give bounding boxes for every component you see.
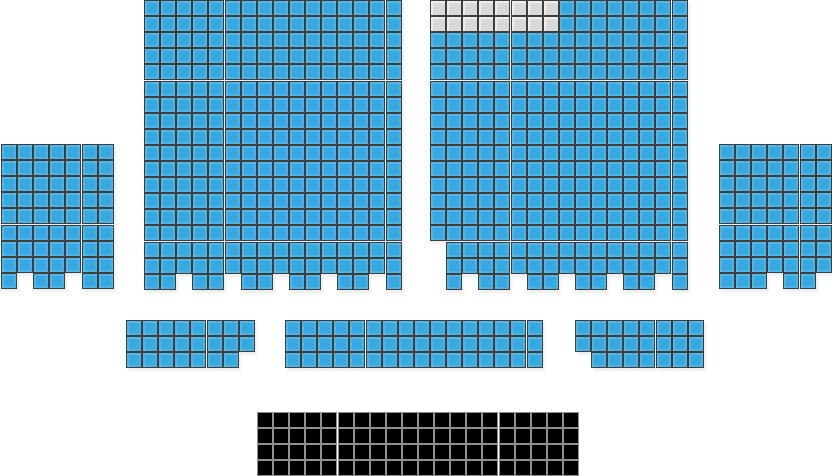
seat-available[interactable] [33, 241, 49, 257]
seat-available[interactable] [239, 320, 255, 336]
seat-available[interactable] [192, 97, 208, 113]
seat-available[interactable] [192, 242, 208, 258]
seat-available[interactable] [527, 242, 543, 258]
seat-available[interactable] [321, 48, 337, 64]
seat-available[interactable] [176, 97, 192, 113]
seat-available[interactable] [623, 81, 639, 97]
seat-available[interactable] [305, 113, 321, 129]
seat-available[interactable] [241, 274, 257, 290]
seat-available[interactable] [176, 81, 192, 97]
seat-available[interactable] [337, 129, 353, 145]
seat-available[interactable] [241, 129, 257, 145]
seat-available[interactable] [257, 81, 273, 97]
seat-available[interactable] [623, 145, 639, 161]
seat-available[interactable] [623, 242, 639, 258]
seat-available[interactable] [816, 192, 832, 208]
seat-available[interactable] [353, 0, 369, 16]
seat-available[interactable] [462, 113, 478, 129]
seat-available[interactable] [623, 258, 639, 274]
seat-available[interactable] [321, 161, 337, 177]
seat-available[interactable] [192, 177, 208, 193]
seat-available[interactable] [176, 129, 192, 145]
seat-available[interactable] [208, 193, 224, 209]
seat-available[interactable] [349, 352, 365, 368]
seat-available[interactable] [607, 320, 623, 336]
seat-available[interactable] [176, 32, 192, 48]
seat-available[interactable] [478, 145, 494, 161]
seat-available[interactable] [208, 113, 224, 129]
seat-available[interactable] [369, 48, 385, 64]
seat-available[interactable] [767, 160, 783, 176]
seat-available[interactable] [430, 32, 446, 48]
seat-available[interactable] [305, 209, 321, 225]
seat-available[interactable] [160, 97, 176, 113]
seat-available[interactable] [144, 113, 160, 129]
seat-available[interactable] [800, 257, 816, 273]
seat-available[interactable] [430, 113, 446, 129]
seat-available[interactable] [289, 48, 305, 64]
seat-available[interactable] [289, 274, 305, 290]
seat-available[interactable] [494, 161, 510, 177]
seat-available[interactable] [144, 0, 160, 16]
seat-available[interactable] [160, 32, 176, 48]
seat-available[interactable] [337, 145, 353, 161]
seat-available[interactable] [17, 192, 33, 208]
seat-available[interactable] [559, 129, 575, 145]
seat-available[interactable] [369, 145, 385, 161]
seat-available[interactable] [225, 16, 241, 32]
seat-available[interactable] [446, 242, 462, 258]
seat-available[interactable] [273, 48, 289, 64]
seat-available[interactable] [800, 192, 816, 208]
seat-available[interactable] [511, 145, 527, 161]
seat-available[interactable] [672, 16, 688, 32]
seat-available[interactable] [1, 225, 17, 241]
seat-available[interactable] [317, 352, 333, 368]
seat-available[interactable] [735, 192, 751, 208]
seat-available[interactable] [735, 257, 751, 273]
seat-available[interactable] [591, 320, 607, 336]
seat-available[interactable] [478, 258, 494, 274]
seat-available[interactable] [257, 177, 273, 193]
seat-available[interactable] [575, 209, 591, 225]
seat-available[interactable] [639, 320, 655, 336]
seat-available[interactable] [17, 241, 33, 257]
seat-available[interactable] [527, 129, 543, 145]
seat-available[interactable] [719, 225, 735, 241]
seat-available[interactable] [655, 225, 671, 241]
seat-available[interactable] [382, 336, 398, 352]
seat-available[interactable] [176, 64, 192, 80]
seat-available[interactable] [623, 16, 639, 32]
seat-available[interactable] [816, 176, 832, 192]
seat-available[interactable] [321, 242, 337, 258]
seat-available[interactable] [446, 161, 462, 177]
seat-available[interactable] [511, 64, 527, 80]
seat-available[interactable] [192, 258, 208, 274]
seat-available[interactable] [559, 64, 575, 80]
seat-available[interactable] [144, 32, 160, 48]
seat-available[interactable] [494, 320, 510, 336]
seat-available[interactable] [225, 161, 241, 177]
seat-available[interactable] [144, 258, 160, 274]
seat-available[interactable] [353, 193, 369, 209]
seat-available[interactable] [192, 48, 208, 64]
seat-available[interactable] [639, 81, 655, 97]
seat-available[interactable] [575, 145, 591, 161]
seat-available[interactable] [559, 177, 575, 193]
seat-available[interactable] [369, 32, 385, 48]
seat-available[interactable] [321, 64, 337, 80]
seat-available[interactable] [241, 242, 257, 258]
seat-available[interactable] [257, 209, 273, 225]
seat-available[interactable] [192, 274, 208, 290]
seat-available[interactable] [800, 176, 816, 192]
seat-available[interactable] [672, 258, 688, 274]
seat-available[interactable] [494, 129, 510, 145]
seat-available[interactable] [527, 209, 543, 225]
seat-available[interactable] [98, 176, 114, 192]
seat-available[interactable] [17, 160, 33, 176]
seat-available[interactable] [607, 352, 623, 368]
seat-available[interactable] [353, 81, 369, 97]
seat-available[interactable] [446, 225, 462, 241]
seat-available[interactable] [816, 160, 832, 176]
seat-available[interactable] [257, 97, 273, 113]
seat-available[interactable] [655, 242, 671, 258]
seat-available[interactable] [623, 352, 639, 368]
seat-available[interactable] [337, 48, 353, 64]
seat-available[interactable] [225, 32, 241, 48]
seat-available[interactable] [241, 64, 257, 80]
seat-available[interactable] [321, 0, 337, 16]
seat-available[interactable] [1, 208, 17, 224]
seat-available[interactable] [65, 241, 81, 257]
seat-available[interactable] [305, 16, 321, 32]
seat-available[interactable] [511, 81, 527, 97]
seat-available[interactable] [144, 242, 160, 258]
seat-available[interactable] [257, 242, 273, 258]
seat-available[interactable] [816, 241, 832, 257]
seat-available[interactable] [160, 16, 176, 32]
seat-available[interactable] [575, 113, 591, 129]
seat-available[interactable] [478, 113, 494, 129]
seat-available[interactable] [527, 32, 543, 48]
seat-available[interactable] [462, 352, 478, 368]
seat-available[interactable] [176, 113, 192, 129]
seat-available[interactable] [176, 225, 192, 241]
seat-available[interactable] [1, 192, 17, 208]
seat-available[interactable] [144, 48, 160, 64]
seat-available[interactable] [174, 352, 190, 368]
seat-available[interactable] [478, 242, 494, 258]
seat-available[interactable] [223, 320, 239, 336]
seat-available[interactable] [257, 32, 273, 48]
seat-available[interactable] [735, 241, 751, 257]
seat-available[interactable] [462, 32, 478, 48]
seat-available[interactable] [430, 97, 446, 113]
seat-available[interactable] [257, 129, 273, 145]
seat-available[interactable] [126, 336, 142, 352]
seat-available[interactable] [289, 193, 305, 209]
seat-available[interactable] [33, 144, 49, 160]
seat-available[interactable] [386, 64, 402, 80]
seat-available[interactable] [337, 209, 353, 225]
seat-available[interactable] [160, 129, 176, 145]
seat-available[interactable] [607, 161, 623, 177]
seat-available[interactable] [305, 48, 321, 64]
seat-available[interactable] [656, 336, 672, 352]
seat-available[interactable] [478, 352, 494, 368]
seat-available[interactable] [591, 258, 607, 274]
seat-available[interactable] [559, 32, 575, 48]
seat-available[interactable] [639, 352, 655, 368]
seat-available[interactable] [494, 113, 510, 129]
seat-available[interactable] [225, 64, 241, 80]
seat-available[interactable] [462, 81, 478, 97]
seat-available[interactable] [158, 336, 174, 352]
seat-available[interactable] [527, 177, 543, 193]
seat-available[interactable] [767, 208, 783, 224]
seat-available[interactable] [430, 81, 446, 97]
seat-available[interactable] [337, 64, 353, 80]
seat-available[interactable] [543, 193, 559, 209]
seat-available[interactable] [494, 97, 510, 113]
seat-available[interactable] [33, 192, 49, 208]
seat-available[interactable] [527, 145, 543, 161]
seat-available[interactable] [33, 257, 49, 273]
seat-available[interactable] [366, 336, 382, 352]
seat-available[interactable] [672, 97, 688, 113]
seat-available[interactable] [639, 113, 655, 129]
seat-available[interactable] [337, 258, 353, 274]
seat-available[interactable] [656, 352, 672, 368]
seat-available[interactable] [208, 209, 224, 225]
seat-available[interactable] [623, 274, 639, 290]
seat-available[interactable] [273, 64, 289, 80]
seat-available[interactable] [591, 242, 607, 258]
seat-available[interactable] [719, 160, 735, 176]
seat-available[interactable] [559, 145, 575, 161]
seat-available[interactable] [144, 64, 160, 80]
seat-available[interactable] [639, 16, 655, 32]
seat-available[interactable] [735, 160, 751, 176]
seat-available[interactable] [575, 97, 591, 113]
seat-available[interactable] [639, 161, 655, 177]
seat-available[interactable] [176, 16, 192, 32]
seat-available[interactable] [142, 320, 158, 336]
seat-available[interactable] [82, 225, 98, 241]
seat-available[interactable] [144, 177, 160, 193]
seat-available[interactable] [719, 176, 735, 192]
seat-available[interactable] [462, 225, 478, 241]
seat-available[interactable] [82, 257, 98, 273]
seat-available[interactable] [543, 242, 559, 258]
seat-available[interactable] [783, 257, 799, 273]
seat-available[interactable] [257, 113, 273, 129]
seat-available[interactable] [575, 32, 591, 48]
seat-available[interactable] [494, 258, 510, 274]
seat-available[interactable] [192, 64, 208, 80]
seat-available[interactable] [98, 192, 114, 208]
seat-available[interactable] [559, 209, 575, 225]
seat-available[interactable] [414, 352, 430, 368]
seat-available[interactable] [337, 161, 353, 177]
seat-available[interactable] [478, 225, 494, 241]
seat-available[interactable] [225, 193, 241, 209]
seat-available[interactable] [462, 48, 478, 64]
seat-available[interactable] [639, 64, 655, 80]
seat-available[interactable] [353, 209, 369, 225]
seat-available[interactable] [321, 16, 337, 32]
seat-available[interactable] [144, 145, 160, 161]
seat-available[interactable] [239, 336, 255, 352]
seat-available[interactable] [751, 192, 767, 208]
seat-available[interactable] [208, 32, 224, 48]
seat-available[interactable] [208, 97, 224, 113]
seat-available[interactable] [192, 16, 208, 32]
seat-available[interactable] [369, 209, 385, 225]
seat-available[interactable] [639, 274, 655, 290]
seat-available[interactable] [65, 160, 81, 176]
seat-available[interactable] [207, 336, 223, 352]
seat-available[interactable] [349, 320, 365, 336]
seat-available[interactable] [98, 273, 114, 289]
seat-available[interactable] [1, 273, 17, 289]
seat-available[interactable] [751, 176, 767, 192]
seat-available[interactable] [559, 161, 575, 177]
seat-available[interactable] [655, 48, 671, 64]
seat-available[interactable] [719, 208, 735, 224]
seat-available[interactable] [49, 225, 65, 241]
seat-available[interactable] [1, 176, 17, 192]
seat-available[interactable] [192, 209, 208, 225]
seat-available[interactable] [289, 242, 305, 258]
seat-available[interactable] [462, 145, 478, 161]
seat-available[interactable] [559, 16, 575, 32]
seat-available[interactable] [783, 225, 799, 241]
seat-available[interactable] [386, 258, 402, 274]
seat-available[interactable] [446, 145, 462, 161]
seat-available[interactable] [607, 16, 623, 32]
seat-available[interactable] [160, 177, 176, 193]
seat-available[interactable] [160, 225, 176, 241]
seat-available[interactable] [783, 160, 799, 176]
seat-available[interactable] [144, 97, 160, 113]
seat-available[interactable] [321, 145, 337, 161]
seat-available[interactable] [575, 64, 591, 80]
seat-available[interactable] [575, 242, 591, 258]
seat-available[interactable] [575, 225, 591, 241]
seat-available[interactable] [305, 161, 321, 177]
seat-available[interactable] [672, 336, 688, 352]
seat-available[interactable] [462, 320, 478, 336]
seat-available[interactable] [225, 81, 241, 97]
seat-available[interactable] [321, 225, 337, 241]
seat-available[interactable] [176, 177, 192, 193]
seat-available[interactable] [305, 258, 321, 274]
seat-available[interactable] [208, 81, 224, 97]
seat-available[interactable] [751, 208, 767, 224]
seat-available[interactable] [527, 193, 543, 209]
seat-available[interactable] [208, 161, 224, 177]
seat-available[interactable] [767, 176, 783, 192]
seat-available[interactable] [751, 273, 767, 289]
seat-available[interactable] [478, 64, 494, 80]
seat-available[interactable] [607, 97, 623, 113]
seat-available[interactable] [511, 97, 527, 113]
seat-available[interactable] [17, 257, 33, 273]
seat-available[interactable] [369, 225, 385, 241]
seat-available[interactable] [1, 241, 17, 257]
seat-available[interactable] [289, 81, 305, 97]
seat-available[interactable] [273, 129, 289, 145]
seat-available[interactable] [241, 145, 257, 161]
seat-available[interactable] [543, 177, 559, 193]
seat-available[interactable] [767, 144, 783, 160]
seat-available[interactable] [225, 145, 241, 161]
seat-available[interactable] [591, 113, 607, 129]
seat-available[interactable] [591, 64, 607, 80]
seat-available[interactable] [478, 97, 494, 113]
seat-available[interactable] [289, 177, 305, 193]
seat-available[interactable] [430, 209, 446, 225]
seat-available[interactable] [672, 64, 688, 80]
seat-available[interactable] [1, 257, 17, 273]
seat-available[interactable] [800, 160, 816, 176]
seat-available[interactable] [398, 352, 414, 368]
seat-available[interactable] [672, 113, 688, 129]
seat-available[interactable] [751, 257, 767, 273]
seat-available[interactable] [160, 0, 176, 16]
seat-available[interactable] [446, 64, 462, 80]
seat-available[interactable] [655, 258, 671, 274]
seat-available[interactable] [672, 177, 688, 193]
seat-available[interactable] [289, 225, 305, 241]
seat-available[interactable] [386, 0, 402, 16]
seat-available[interactable] [241, 16, 257, 32]
seat-available[interactable] [337, 0, 353, 16]
seat-available[interactable] [49, 192, 65, 208]
seat-available[interactable] [735, 176, 751, 192]
seat-available[interactable] [527, 97, 543, 113]
seat-available[interactable] [225, 225, 241, 241]
seat-available[interactable] [575, 0, 591, 16]
seat-available[interactable] [192, 161, 208, 177]
seat-available[interactable] [591, 352, 607, 368]
seat-available[interactable] [192, 225, 208, 241]
seat-available[interactable] [273, 161, 289, 177]
seat-available[interactable] [337, 177, 353, 193]
seat-available[interactable] [208, 225, 224, 241]
seat-available[interactable] [543, 209, 559, 225]
seat-available[interactable] [289, 209, 305, 225]
seat-available[interactable] [98, 225, 114, 241]
seat-available[interactable] [655, 209, 671, 225]
seat-available[interactable] [257, 258, 273, 274]
seat-available[interactable] [478, 81, 494, 97]
seat-available[interactable] [446, 336, 462, 352]
seat-available[interactable] [430, 352, 446, 368]
seat-available[interactable] [655, 193, 671, 209]
seat-available[interactable] [591, 177, 607, 193]
seat-available[interactable] [655, 32, 671, 48]
seat-available[interactable] [241, 97, 257, 113]
seat-available[interactable] [527, 64, 543, 80]
seat-available[interactable] [430, 225, 446, 241]
seat-available[interactable] [688, 336, 704, 352]
seat-available[interactable] [735, 225, 751, 241]
